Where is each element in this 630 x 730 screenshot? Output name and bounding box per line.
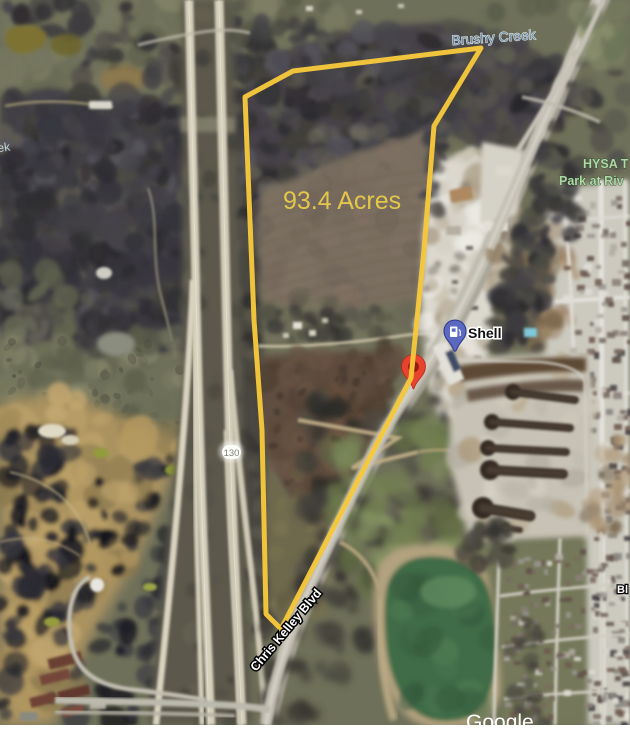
- svg-text:Park at Riv: Park at Riv: [559, 174, 624, 188]
- svg-text:130: 130: [224, 448, 240, 459]
- svg-text:Google: Google: [466, 711, 534, 725]
- svg-text:Shell: Shell: [468, 325, 501, 341]
- svg-text:Bl: Bl: [617, 584, 628, 596]
- svg-text:93.4 Acres: 93.4 Acres: [283, 187, 401, 215]
- svg-text:HYSA T: HYSA T: [583, 157, 629, 171]
